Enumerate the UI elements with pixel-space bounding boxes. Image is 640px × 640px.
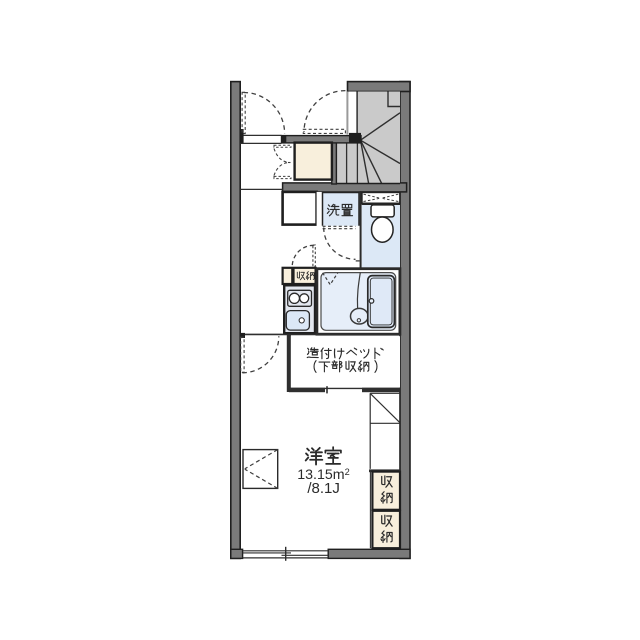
svg-text:/8.1J: /8.1J <box>307 480 340 497</box>
